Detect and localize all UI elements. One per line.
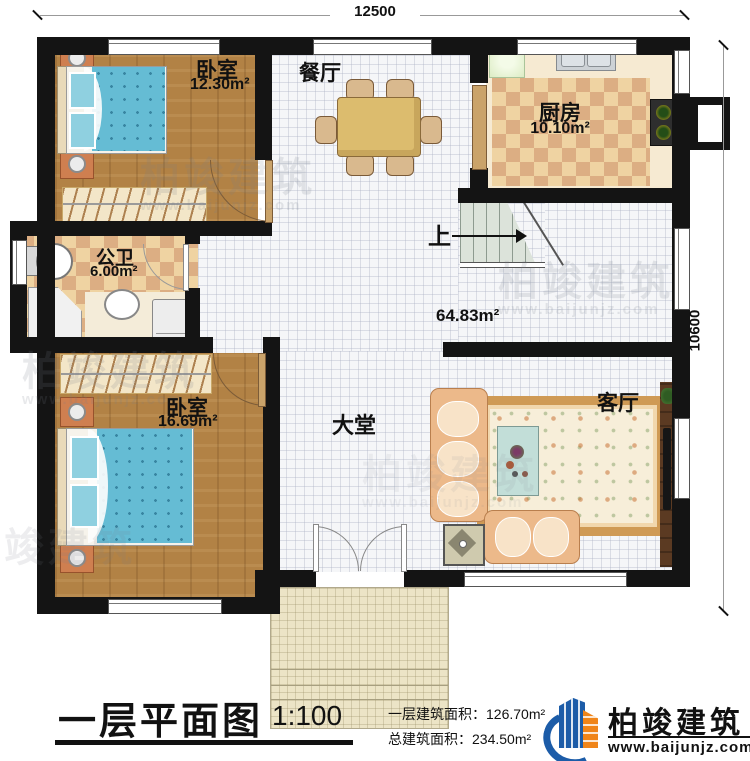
dining-chair <box>420 116 442 144</box>
entry-door-leaf <box>313 524 319 572</box>
pillow <box>69 112 96 149</box>
sofa-section <box>484 510 580 564</box>
lamp-icon <box>68 155 86 173</box>
drawing-scale: 1:100 <box>272 700 342 732</box>
window <box>674 50 690 94</box>
room-area-bedroom-top: 12.30m² <box>190 76 250 94</box>
dining-chair <box>315 116 337 144</box>
stairs-bottom-edge <box>460 262 545 268</box>
window <box>464 572 627 587</box>
window <box>12 240 27 285</box>
sofa-cushion <box>437 441 479 477</box>
dimension-height-label: 10600 <box>687 296 704 366</box>
pillow <box>70 436 99 480</box>
logo-tower-orange <box>583 710 598 748</box>
room-area-bathroom: 6.00m² <box>90 263 138 280</box>
wall <box>10 337 213 353</box>
sofa-cushion <box>533 517 569 557</box>
door-leaf <box>472 85 487 170</box>
sofa-cushion <box>437 401 479 437</box>
wall <box>443 342 690 357</box>
window <box>313 39 432 55</box>
floor-area-text: 一层建筑面积：126.70m² <box>388 704 545 724</box>
wall <box>470 168 488 190</box>
company-logo-icon <box>543 696 605 756</box>
side-table <box>443 524 485 566</box>
room-area-bedroom-bottom: 16.69m² <box>158 413 218 431</box>
stairs-up-label: 上 <box>428 217 451 251</box>
wardrobe <box>62 187 207 222</box>
wall <box>185 288 200 337</box>
company-website: www.baijunjz.com <box>608 736 750 756</box>
wall <box>470 37 488 83</box>
wall <box>255 37 272 160</box>
dimension-width-label: 12500 <box>330 3 420 20</box>
porch-step-line <box>271 685 448 686</box>
nightstand <box>60 150 94 179</box>
wall <box>10 221 272 236</box>
room-label-living: 客厅 <box>597 387 639 417</box>
door-leaf <box>183 244 189 291</box>
pillow <box>70 484 99 528</box>
wall <box>458 188 690 203</box>
room-label-dining: 餐厅 <box>299 57 341 87</box>
stairs-direction-line <box>452 235 518 237</box>
nightstand <box>60 543 94 573</box>
bed-blanket <box>92 67 165 151</box>
hall-area-label: 64.83m² <box>436 306 499 326</box>
total-area-text: 总建筑面积：234.50m² <box>388 729 531 749</box>
pillow <box>69 72 96 109</box>
bathroom-sink <box>104 289 140 320</box>
lamp-icon <box>68 403 86 421</box>
wall <box>37 37 55 612</box>
flue-bump-inner <box>698 105 722 142</box>
door-leaf <box>258 353 266 407</box>
dimension-line-right <box>723 45 724 612</box>
dining-chair <box>346 154 374 176</box>
room-label-hall: 大堂 <box>332 408 376 440</box>
dining-chair <box>386 154 414 176</box>
sofa-cushion <box>437 481 479 517</box>
wardrobe <box>60 354 212 394</box>
nightstand <box>60 397 94 427</box>
window <box>517 39 637 55</box>
dining-table <box>337 97 421 157</box>
entry-door-leaf <box>401 524 407 572</box>
window <box>108 599 222 614</box>
stairs-arrow-icon <box>516 229 527 243</box>
room-area-kitchen: 10.10m² <box>520 120 600 138</box>
lamp-icon <box>68 549 86 567</box>
window <box>674 418 690 499</box>
floor-plan: 柏竣建筑 www.baijunjz.com 柏竣建筑 www.baijunjz.… <box>0 0 750 761</box>
sofa-cushion <box>495 517 531 557</box>
tv <box>663 428 671 510</box>
window <box>108 39 220 55</box>
coffee-table <box>497 426 539 496</box>
wall <box>185 236 200 244</box>
bed-blanket <box>97 429 192 543</box>
logo-tower-blue <box>559 698 585 748</box>
porch-step-line <box>271 669 448 670</box>
door-leaf <box>265 160 273 223</box>
sofa-section <box>430 388 488 522</box>
title-underline <box>55 740 353 745</box>
page-title: 一层平面图 <box>58 690 263 745</box>
